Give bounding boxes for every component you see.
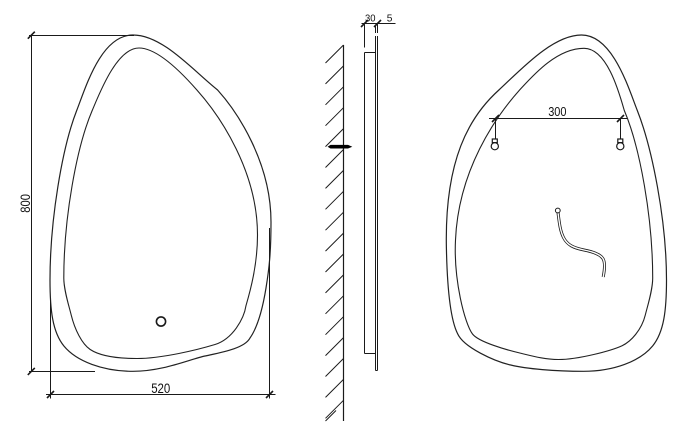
svg-text:5: 5: [387, 14, 393, 25]
svg-text:520: 520: [151, 381, 170, 397]
svg-text:300: 300: [548, 104, 566, 119]
svg-text:800: 800: [18, 194, 33, 213]
svg-text:30: 30: [365, 14, 376, 25]
